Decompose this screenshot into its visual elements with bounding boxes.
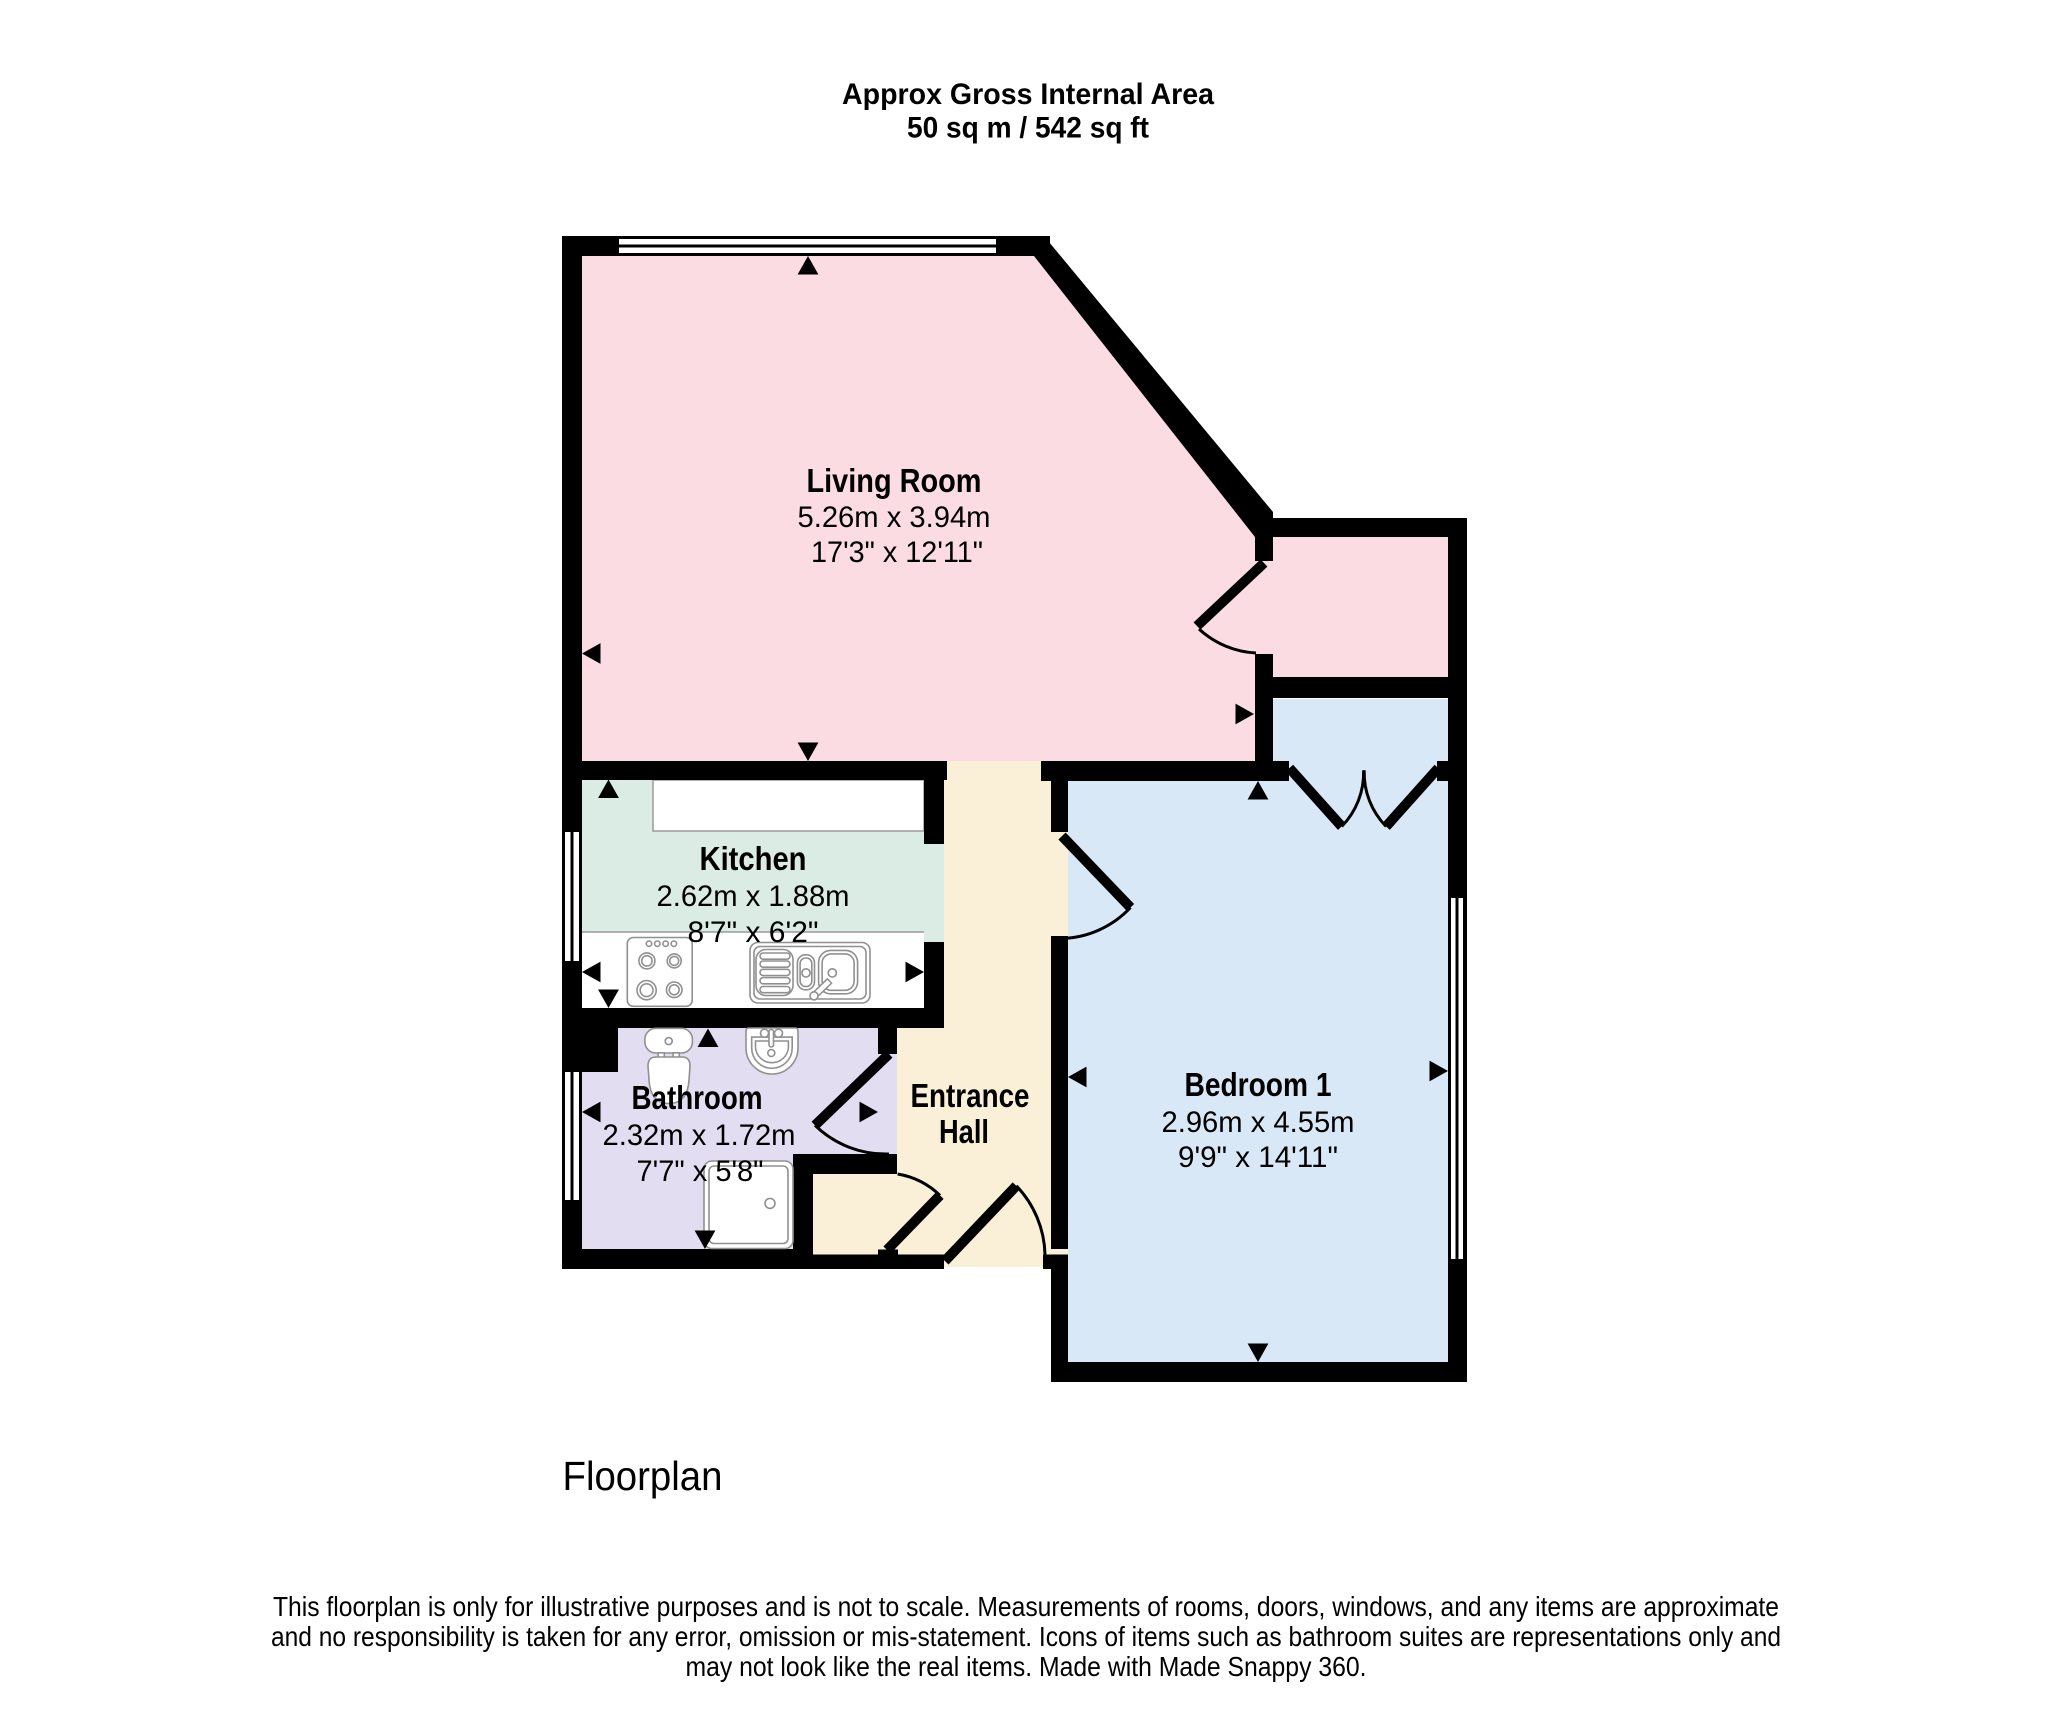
svg-text:This floorplan is only for ill: This floorplan is only for illustrative … [273, 1591, 1779, 1622]
svg-text:2.32m x 1.72m: 2.32m x 1.72m [603, 1119, 796, 1152]
svg-text:7'7" x 5'8": 7'7" x 5'8" [637, 1155, 764, 1188]
svg-text:9'9" x 14'11": 9'9" x 14'11" [1178, 1141, 1338, 1174]
svg-text:Hall: Hall [939, 1113, 989, 1150]
svg-text:17'3" x 12'11": 17'3" x 12'11" [811, 536, 983, 569]
svg-text:Entrance: Entrance [911, 1077, 1030, 1114]
svg-text:Bathroom: Bathroom [632, 1079, 763, 1116]
svg-text:Floorplan: Floorplan [563, 1453, 723, 1499]
svg-text:50 sq m / 542 sq ft: 50 sq m / 542 sq ft [907, 112, 1149, 145]
svg-text:Kitchen: Kitchen [700, 840, 807, 877]
svg-text:and no responsibility is taken: and no responsibility is taken for any e… [271, 1621, 1781, 1652]
svg-text:2.96m x 4.55m: 2.96m x 4.55m [1162, 1106, 1355, 1139]
svg-text:2.62m x 1.88m: 2.62m x 1.88m [657, 880, 850, 913]
svg-text:Approx Gross Internal Area: Approx Gross Internal Area [842, 78, 1214, 111]
svg-text:5.26m x 3.94m: 5.26m x 3.94m [798, 501, 991, 534]
svg-text:Bedroom 1: Bedroom 1 [1185, 1066, 1332, 1103]
svg-text:8'7" x 6'2": 8'7" x 6'2" [688, 916, 819, 949]
svg-text:Living Room: Living Room [807, 462, 982, 499]
svg-text:may not look like the real ite: may not look like the real items. Made w… [686, 1651, 1367, 1682]
